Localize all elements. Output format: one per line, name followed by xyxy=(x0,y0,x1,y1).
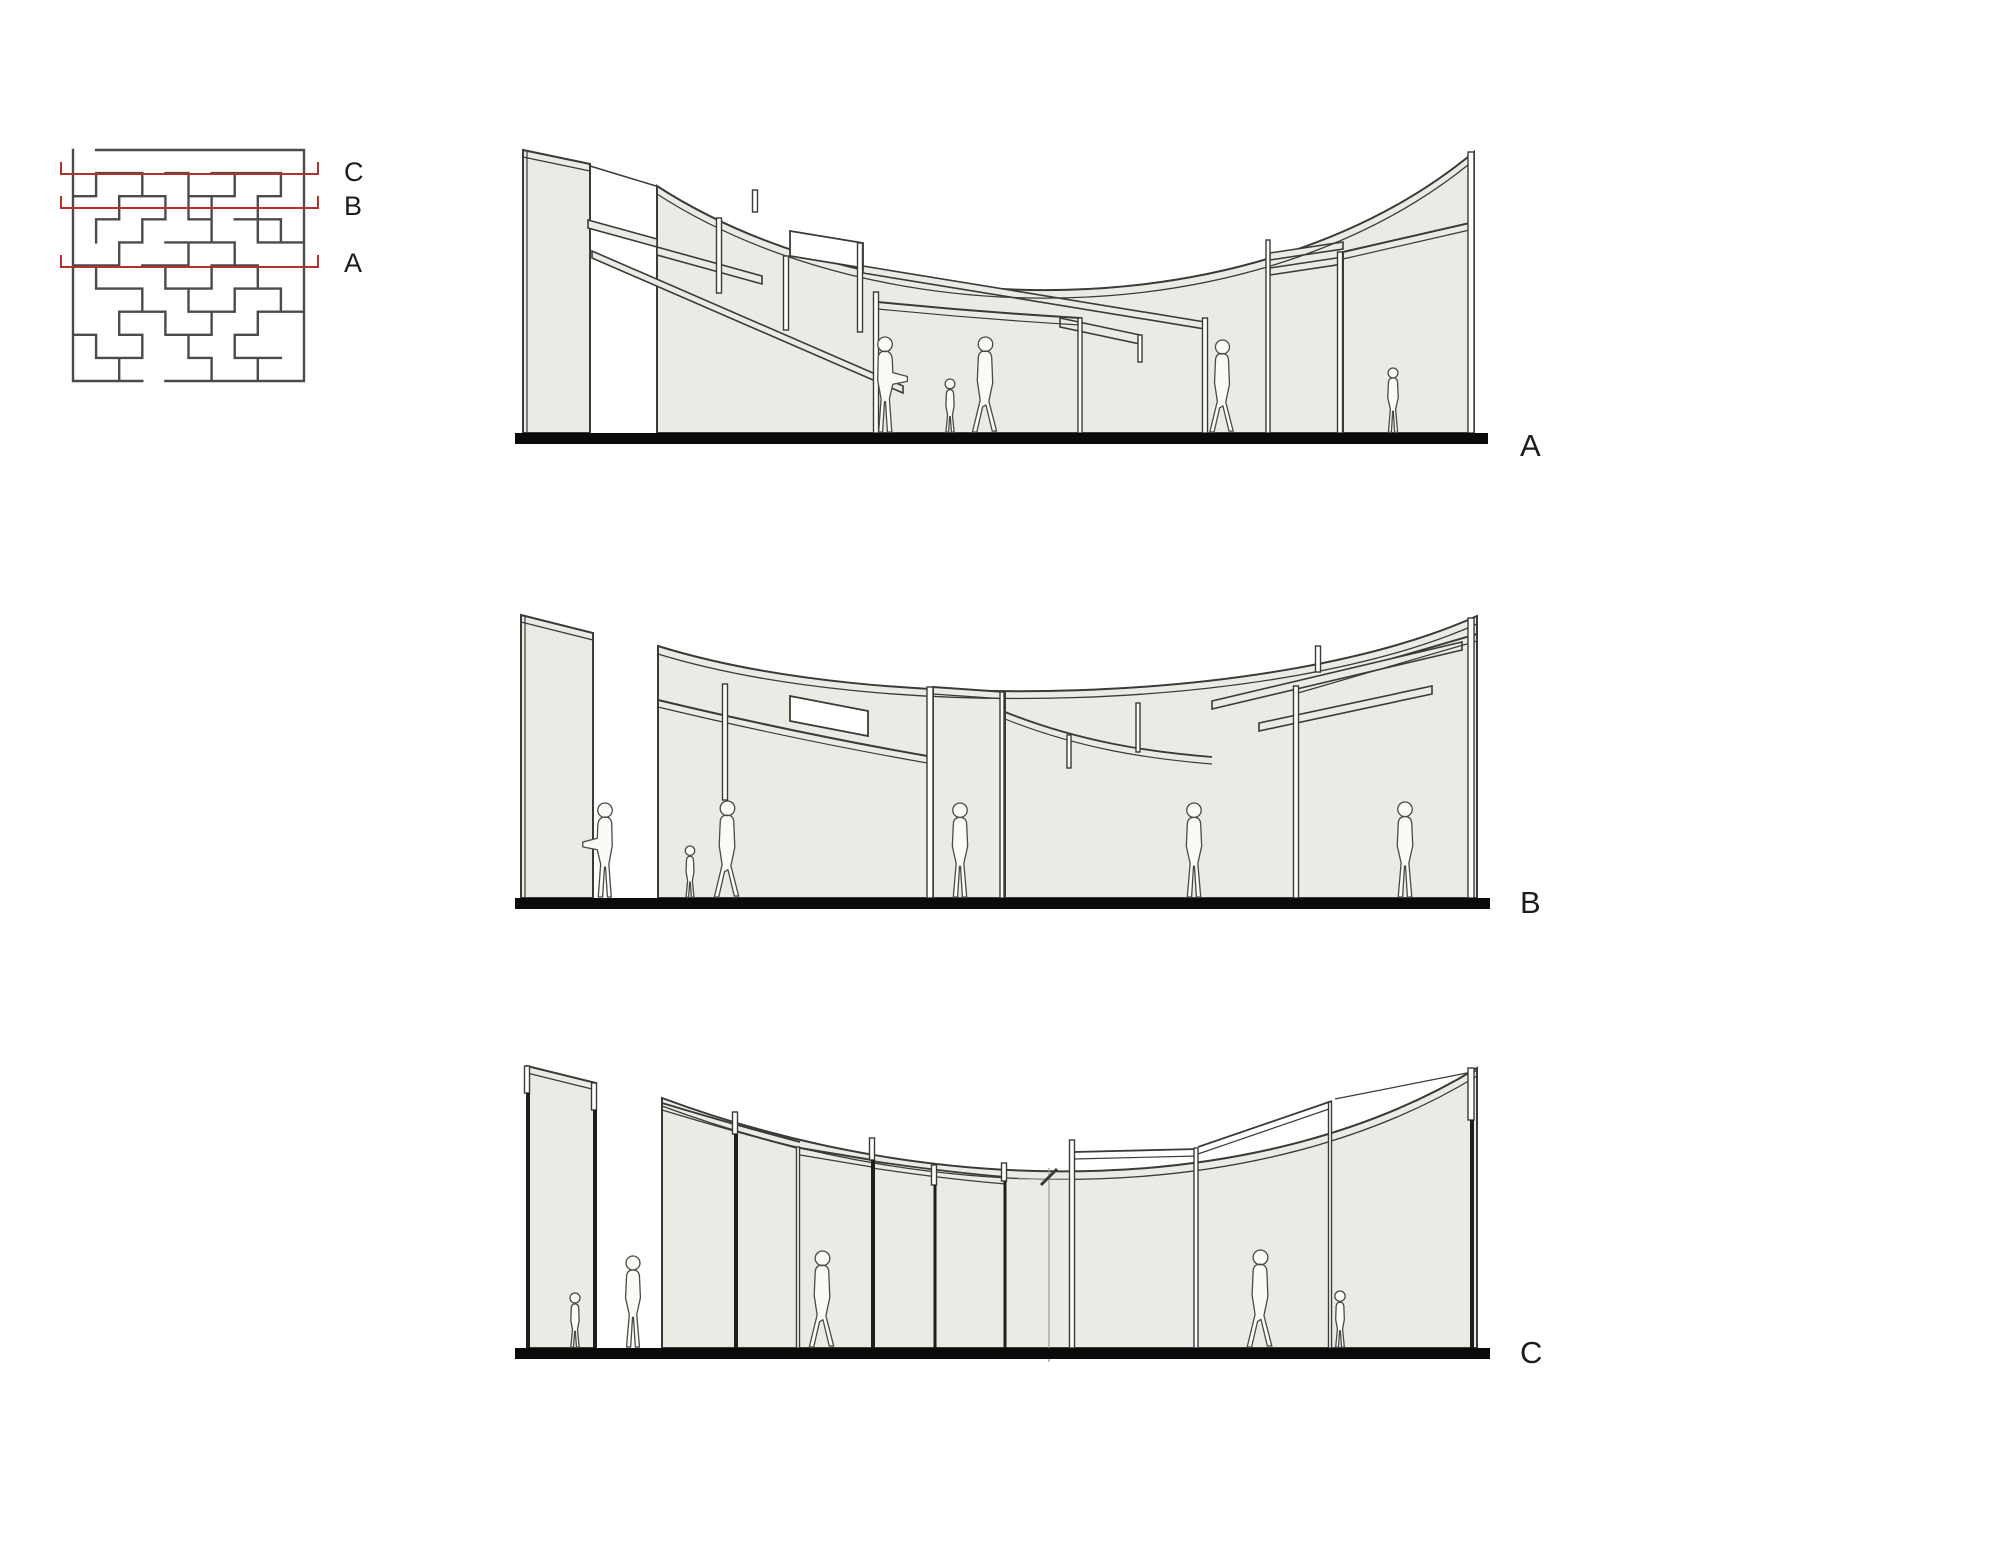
ground-line xyxy=(515,433,1488,444)
cut-wall-edge xyxy=(592,1083,597,1110)
edge-line xyxy=(1074,1156,1198,1159)
edge-line xyxy=(1074,1149,1198,1152)
drawing-canvas: C B A A B C xyxy=(0,0,2000,1545)
person-silhouette xyxy=(626,1256,641,1347)
section-label-c: C xyxy=(1520,1335,1543,1370)
cut-wall-edge-solid xyxy=(1470,1120,1474,1348)
cut-wall-edge-solid xyxy=(734,1134,738,1348)
architectural-drawing-sheet: C B A A B C xyxy=(0,0,2000,1545)
wall-panel xyxy=(523,150,590,433)
plan-cut-label-b: B xyxy=(344,191,363,221)
cut-wall-edge xyxy=(858,243,863,332)
ground-line xyxy=(515,1348,1490,1359)
cut-wall-edge xyxy=(927,687,933,898)
section-labels: A B C xyxy=(1520,428,1543,1370)
cut-wall-edge xyxy=(1468,618,1474,898)
cut-wall-edge xyxy=(723,684,728,800)
cut-wall-edge xyxy=(1194,1148,1198,1348)
cut-wall-edge-solid xyxy=(526,1093,530,1348)
section-drawing-c xyxy=(515,1066,1490,1362)
section-label-a: A xyxy=(1520,428,1542,463)
section-label-b: B xyxy=(1520,885,1542,920)
maze-plan xyxy=(73,150,304,381)
cut-wall-edge xyxy=(1002,1163,1007,1181)
cut-wall-edge xyxy=(1078,318,1082,433)
cut-wall-edge xyxy=(1266,240,1270,433)
section-drawing-a xyxy=(515,150,1488,444)
wall-panel xyxy=(933,687,1005,898)
edge-line xyxy=(590,166,656,186)
cut-wall-edge xyxy=(1138,335,1142,362)
cut-wall-edge xyxy=(1468,152,1474,433)
cut-wall-edge xyxy=(1070,1140,1075,1348)
cut-wall-edge xyxy=(1203,318,1208,433)
section-drawing-b xyxy=(515,615,1490,909)
ground-line xyxy=(515,898,1490,909)
cut-wall-edge xyxy=(733,1112,738,1134)
cut-wall-edge xyxy=(753,190,758,212)
cut-wall-edge xyxy=(1468,1068,1474,1120)
cut-wall-edge xyxy=(797,1147,800,1348)
cut-wall-edge xyxy=(1316,646,1321,672)
cut-wall-edge xyxy=(870,1138,875,1160)
cut-wall-edge xyxy=(1329,1102,1332,1348)
cut-wall-edge xyxy=(717,218,722,293)
maze-walls xyxy=(73,150,304,381)
cut-wall-edge xyxy=(932,1165,937,1185)
plan-cut-label-a: A xyxy=(344,248,363,278)
plan-cut-label-c: C xyxy=(344,157,365,187)
plan-cut-labels: C B A xyxy=(344,157,365,278)
cut-wall-edge xyxy=(1294,686,1299,898)
cut-wall-edge xyxy=(1338,252,1343,433)
person-figure-stand xyxy=(626,1256,641,1347)
wall-panel xyxy=(1343,222,1474,433)
cut-wall-edge xyxy=(1000,692,1004,898)
cut-wall-edge xyxy=(525,1066,530,1093)
wall-panel xyxy=(527,1066,596,1348)
cut-wall-edge-solid xyxy=(871,1160,875,1348)
wall-panel xyxy=(521,615,593,898)
cut-wall-edge-solid xyxy=(593,1110,597,1348)
wall-band xyxy=(588,220,657,247)
cut-wall-edge xyxy=(784,256,789,330)
cut-wall-edge-solid xyxy=(934,1185,937,1348)
cut-wall-edge xyxy=(1136,703,1140,752)
cut-wall-edge xyxy=(1067,735,1071,768)
cut-wall-edge-solid xyxy=(1004,1181,1007,1348)
